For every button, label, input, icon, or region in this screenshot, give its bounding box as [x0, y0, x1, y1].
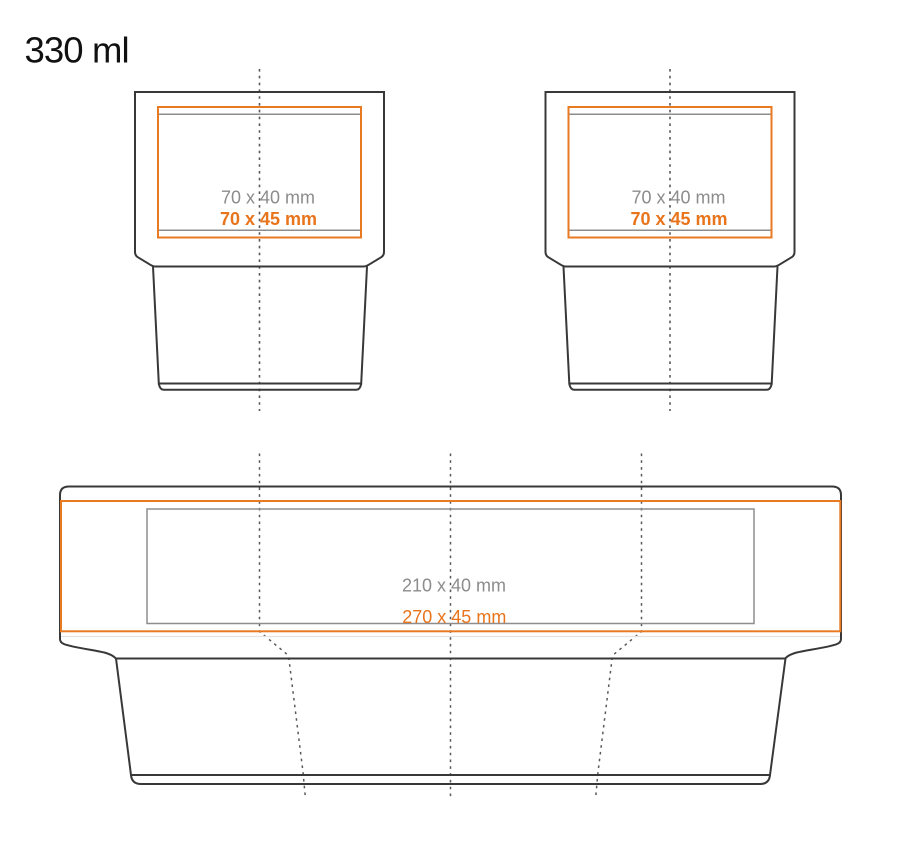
svg-text:270 x 45 mm: 270 x 45 mm	[402, 607, 506, 627]
svg-text:70 x 40 mm: 70 x 40 mm	[221, 188, 315, 208]
svg-text:70 x 45 mm: 70 x 45 mm	[630, 209, 727, 229]
svg-text:70 x 40 mm: 70 x 40 mm	[631, 188, 725, 208]
svg-text:330 ml: 330 ml	[25, 30, 129, 71]
svg-text:210 x 40 mm: 210 x 40 mm	[402, 575, 506, 595]
svg-text:70 x 45 mm: 70 x 45 mm	[220, 209, 317, 229]
